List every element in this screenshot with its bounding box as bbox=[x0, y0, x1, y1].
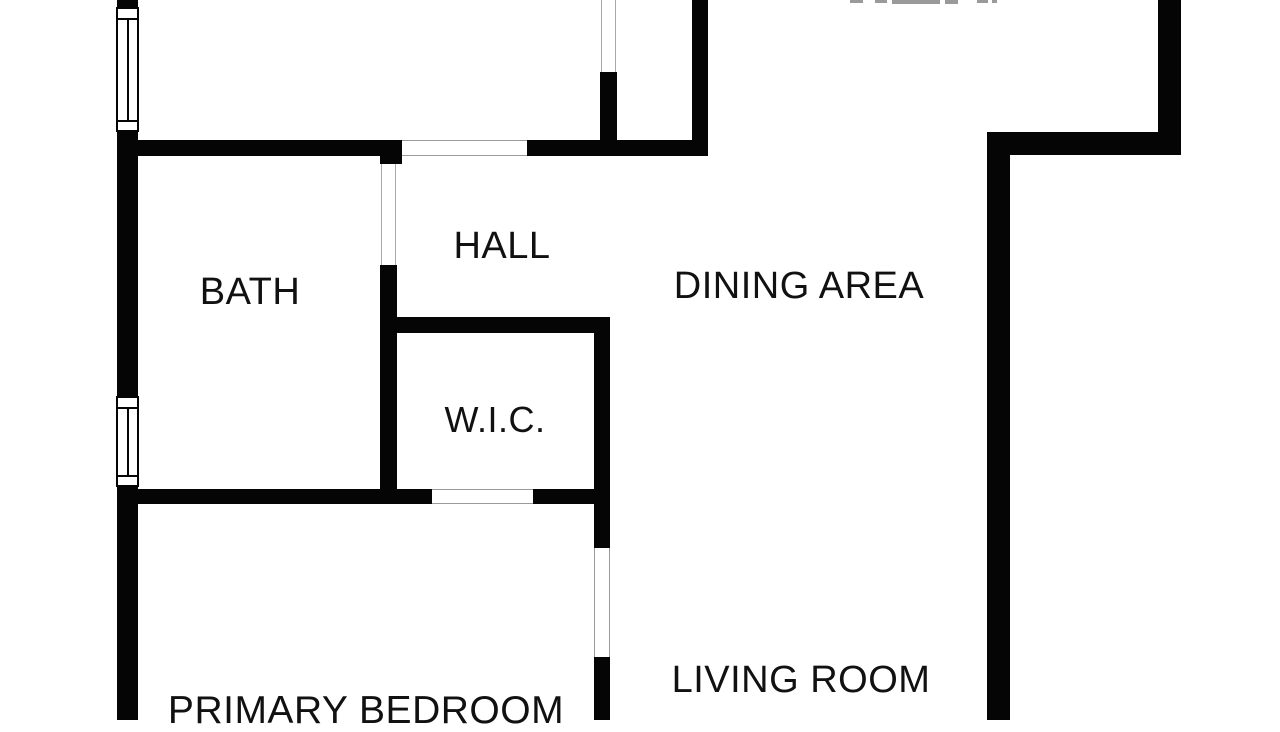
wall-hall-right-vertical bbox=[692, 0, 708, 156]
room-label-hall: HALL bbox=[453, 227, 550, 265]
room-label-dining-area: DINING AREA bbox=[674, 267, 924, 305]
room-label-wic: W.I.C. bbox=[445, 402, 546, 438]
bedroom-living-opening bbox=[594, 548, 610, 657]
bath-doorway-jamb bbox=[381, 164, 382, 265]
wall-wic-top bbox=[380, 317, 610, 333]
wall-wic-bottom bbox=[533, 489, 595, 504]
cutoff-text-fragment bbox=[992, 0, 997, 3]
window-mullion bbox=[127, 19, 129, 121]
cutoff-text-fragment bbox=[892, 0, 940, 4]
top-center-doorway-jamb bbox=[615, 0, 616, 72]
wall-dining-right-vertical bbox=[987, 132, 1010, 720]
room-label-bath: BATH bbox=[200, 273, 301, 311]
wall-top-center-vertical bbox=[600, 72, 617, 156]
left-wall-lower-window-icon bbox=[116, 396, 139, 487]
wall-bath-wic-divider bbox=[380, 265, 397, 504]
wall-hall-top bbox=[527, 140, 708, 156]
wall-bath-top bbox=[138, 140, 402, 156]
room-label-living-room: LIVING ROOM bbox=[672, 661, 931, 699]
cutoff-text-fragment bbox=[945, 0, 958, 4]
cutoff-text-fragment bbox=[850, 0, 863, 3]
wall-bath-top-stub bbox=[380, 156, 402, 164]
cutoff-text-fragment bbox=[875, 0, 887, 3]
hall-top-doorway bbox=[402, 140, 527, 156]
cutoff-text-fragment bbox=[977, 0, 988, 3]
left-wall-upper-window-icon bbox=[116, 7, 139, 132]
top-center-doorway-jamb bbox=[601, 0, 602, 72]
wall-bedroom-living-divider bbox=[594, 657, 610, 720]
window-mullion bbox=[127, 408, 129, 476]
primary-bedroom-doorway bbox=[432, 489, 533, 504]
room-label-primary-bedroom: PRIMARY BEDROOM bbox=[168, 691, 564, 730]
wall-entry-horizontal bbox=[987, 132, 1181, 155]
floor-plan: BATH HALL DINING AREA W.I.C. LIVING ROOM… bbox=[0, 0, 1280, 720]
wall-wic-right-upper bbox=[594, 317, 610, 548]
wall-entry-vertical bbox=[1158, 0, 1181, 155]
wall-bath-bottom bbox=[117, 489, 432, 504]
bath-doorway-jamb bbox=[395, 164, 396, 265]
